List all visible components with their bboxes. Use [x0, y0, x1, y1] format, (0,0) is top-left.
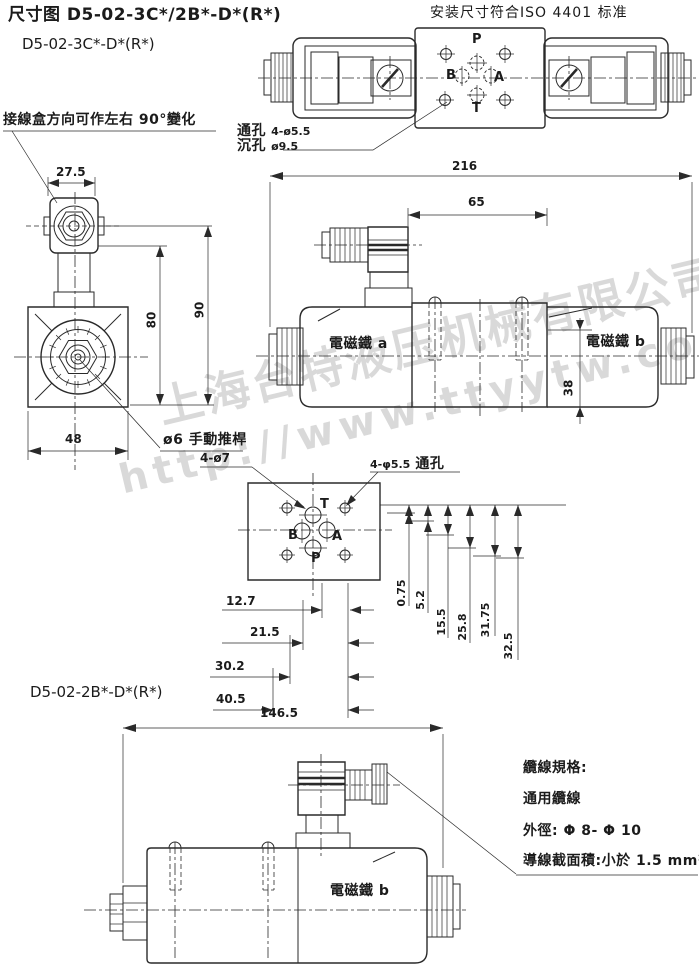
- model-2b-label: D5-02-2B*-D*(R*): [30, 684, 162, 701]
- drawing-sheet: 上海台特液压机械有限公司 http://www.ttyytw.com: [0, 0, 699, 974]
- subplate-through-holes-value: 4-φ5.5: [370, 458, 410, 471]
- front-view-linework: [256, 172, 699, 424]
- junction-box-note: 接線盒方向可作左右 90°變化: [3, 113, 196, 129]
- subplate-linework: [200, 467, 566, 718]
- manual-override-note: ø6 手動推桿: [163, 433, 247, 449]
- top-view-port-a: A: [494, 71, 504, 86]
- dim-21-5: 21.5: [250, 626, 280, 639]
- solenoid-a-label: 電磁鐵 a: [329, 337, 388, 353]
- subplate-port-t: T: [320, 498, 329, 513]
- top-view-port-b: B: [446, 69, 456, 84]
- dim-12-7: 12.7: [226, 595, 256, 608]
- subplate-port-p: P: [311, 552, 321, 567]
- dim-31-75: 31.75: [480, 603, 492, 638]
- dim-15-5: 15.5: [436, 608, 448, 635]
- dim-32-5: 32.5: [503, 632, 515, 659]
- subplate-through-holes-note: 4-φ5.5 通孔: [370, 454, 444, 473]
- top-view-port-t: T: [472, 102, 481, 117]
- subplate-port-holes-note: 4-ø7: [200, 452, 230, 465]
- dim-146-5: 146.5: [260, 707, 298, 720]
- dim-80: 80: [145, 312, 158, 329]
- iso-standard-note: 安装尺寸符合ISO 4401 标准: [430, 6, 628, 22]
- subplate-port-a: A: [332, 530, 342, 545]
- cable-spec-wire-section: 導線截面積:小於 1.5 mm²: [523, 854, 699, 870]
- dim-65: 65: [468, 196, 485, 209]
- cable-spec-title: 纜線規格:: [523, 761, 587, 777]
- counterbore-value: ø9.5: [271, 140, 298, 153]
- top-view-port-p: P: [472, 33, 482, 48]
- counterbore-label: 沉孔: [237, 138, 266, 154]
- dim-48: 48: [65, 433, 82, 446]
- subplate-port-b: B: [288, 529, 298, 544]
- side-view-linework: [3, 131, 243, 470]
- dim-40-5: 40.5: [216, 693, 246, 706]
- model-3c-label: D5-02-3C*-D*(R*): [22, 36, 155, 53]
- dim-25-8: 25.8: [457, 613, 469, 640]
- dim-216: 216: [452, 160, 477, 173]
- dim-5-2: 5.2: [415, 590, 427, 610]
- cable-spec-type: 通用纜線: [523, 792, 581, 808]
- dim-30-2: 30.2: [215, 660, 245, 673]
- page-title: 尺寸图 D5-02-3C*/2B*-D*(R*): [8, 6, 281, 25]
- dim-38: 38: [562, 380, 575, 397]
- solenoid-b-label: 電磁鐵 b: [586, 335, 645, 351]
- counterbore-note: 沉孔 ø9.5: [237, 136, 298, 155]
- dim-0-75: 0.75: [396, 579, 408, 606]
- cable-spec-outer-diameter: 外徑: Φ 8- Φ 10: [523, 824, 641, 840]
- dim-90: 90: [193, 302, 206, 319]
- solenoid-b2-label: 電磁鐵 b: [330, 884, 389, 900]
- bottom-view-linework: [84, 724, 698, 963]
- subplate-through-holes-label: 通孔: [415, 456, 444, 472]
- dim-27-5: 27.5: [56, 166, 86, 179]
